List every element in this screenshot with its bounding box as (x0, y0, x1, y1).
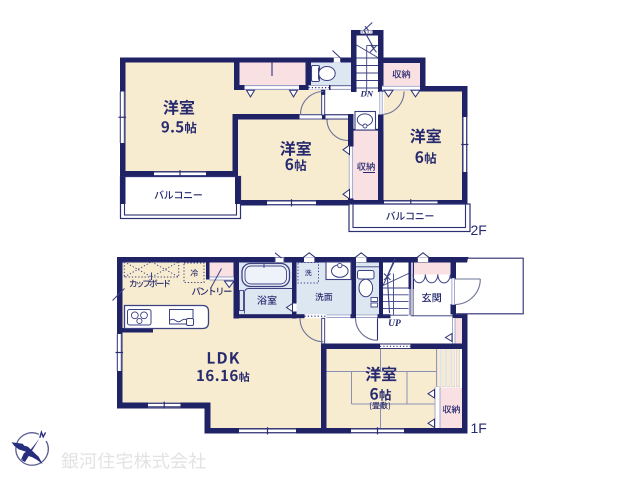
svg-text:1F: 1F (471, 420, 487, 436)
svg-text:UP: UP (388, 319, 401, 329)
svg-text:2F: 2F (471, 222, 487, 238)
svg-text:DN: DN (359, 88, 373, 98)
